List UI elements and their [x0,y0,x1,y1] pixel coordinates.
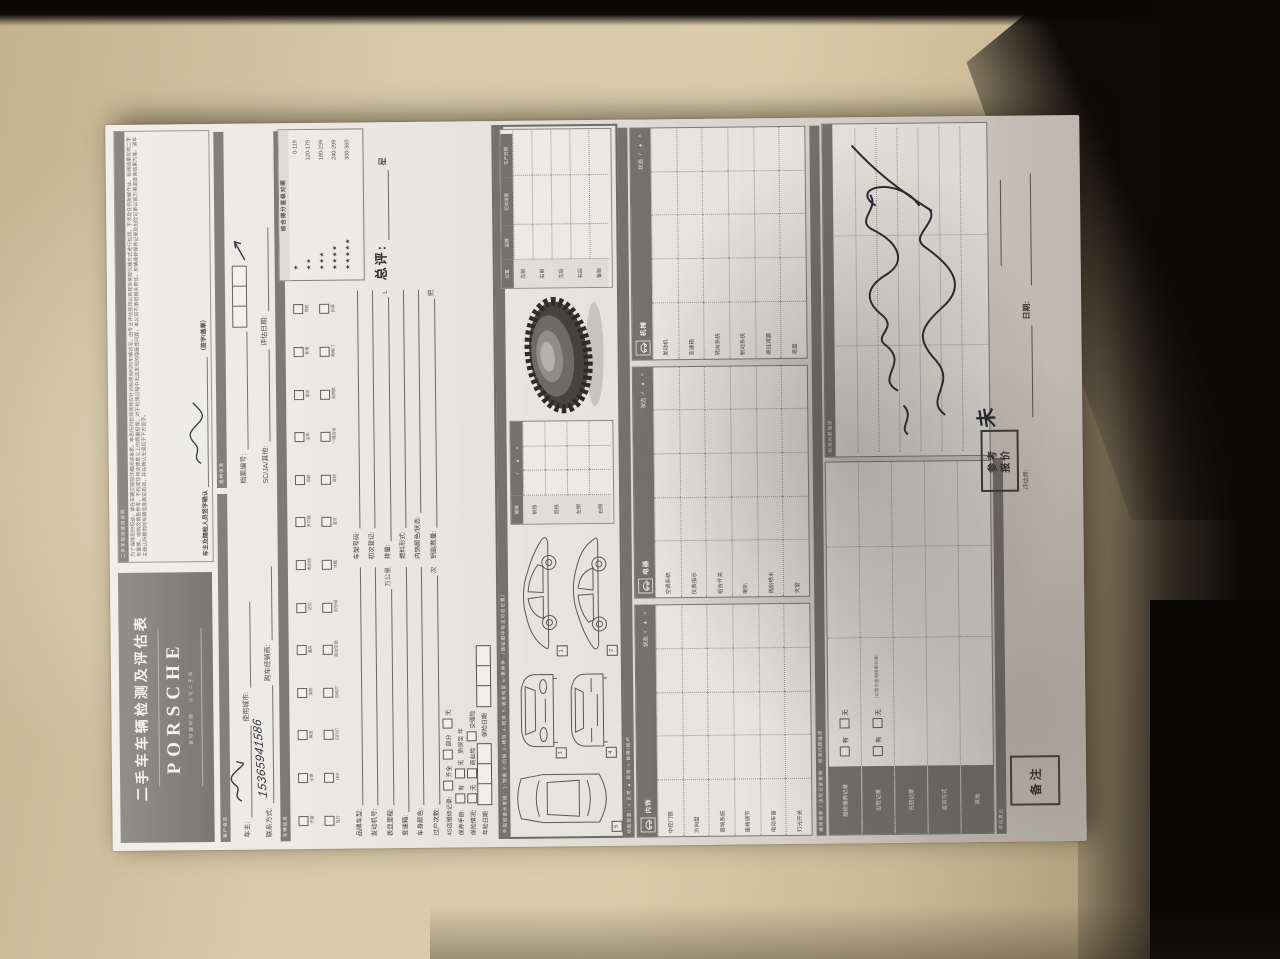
config-checkbox-全景[interactable] [298,773,308,783]
glass-cell[interactable] [567,446,589,471]
function-status-cell[interactable] [652,259,678,303]
date-box[interactable] [476,743,492,805]
disclaimer-block: 二手车检测使用说明 为了保障您的权益，请在车辆交接前仔细阅读本表。本表所列检测项… [113,130,214,563]
config-item: 电尾门 [314,329,340,372]
inspection-form-paper: 二手车车辆检测及评估表 PORSCHE 保时捷中国 · 认可二手车 二手车检测使… [105,115,1087,851]
function-status-cell[interactable] [708,692,734,736]
problem-body[interactable] [833,123,989,457]
function-status-cell[interactable] [782,453,808,497]
checkbox-无[interactable] [455,769,465,779]
config-item: 真皮 [292,713,318,756]
assessor-label: 评估师: [1021,470,1030,490]
function-status-cell[interactable] [780,258,806,302]
function-status-cell[interactable] [782,496,808,540]
tire-head-cell: 位置 [502,260,514,288]
function-status-cell[interactable] [734,736,760,780]
status-label: 状态 [642,636,650,647]
function-status-cell[interactable] [756,409,782,453]
record-body[interactable] [925,461,960,765]
config-label: 一键启动 [331,428,337,444]
config-item: 影像 [288,330,314,373]
function-status-cell[interactable] [707,605,733,649]
vehicle-check-rows: 4S店维修记录:齐全部分无保养手册:有无质保至 年保险情况:无商业险交强险年检日… [437,285,495,840]
tire-cell[interactable] [513,176,533,225]
record-option: 有 [840,737,850,757]
record-option: 无 [872,709,882,729]
function-status-cell[interactable] [651,215,677,259]
function-status-cell[interactable] [681,605,707,649]
record-option: 有 [873,737,883,757]
date-line[interactable] [1030,173,1032,285]
config-checkbox-冰箱[interactable] [321,560,331,570]
tire-row: 左前 [512,130,533,288]
function-status-cell[interactable] [753,171,779,215]
vehicle-field: 车身颜色: [407,563,425,840]
function-status-cell[interactable] [781,365,807,409]
check-label: 保险情况: [468,810,477,836]
function-status-cell[interactable] [759,692,785,736]
grid-line [959,545,991,546]
config-row: 氙灯LED日行灯自动灯自动空调后空调冰箱蓝牙音响一键启动无钥匙电尾门抬显 [314,287,346,841]
star-rating: ★★ [306,257,313,270]
file-code-box[interactable] [232,266,248,328]
function-status-cell[interactable] [757,497,783,541]
function-status-cell[interactable] [656,693,682,737]
config-item: 电动椅 [291,543,317,586]
record-option-label: 有 [873,737,883,744]
field-suffix: L [382,290,389,294]
function-status-cell[interactable] [654,498,680,542]
config-checkbox-无钥匙[interactable] [320,389,330,399]
config-checkbox-雷达[interactable] [294,390,304,400]
grid-line [893,546,925,547]
function-status-cell[interactable] [733,692,759,736]
star-rating: ★★★ [319,251,326,270]
overall-field[interactable] [379,170,390,240]
function-status-cell[interactable] [785,691,811,735]
field-input[interactable] [428,576,440,805]
config-label: 雷达 [305,390,310,398]
config-item: 冰箱 [317,542,343,585]
function-status-cell[interactable] [653,367,679,411]
function-status-cell[interactable] [729,258,755,302]
dealer-label: 购车经销商: [263,644,273,681]
function-status-cell[interactable] [779,127,805,171]
function-item-label: 喇叭 [732,541,758,597]
view-label-4: 4 [606,747,617,758]
function-status-cell[interactable] [681,649,707,693]
signature-line[interactable] [1000,180,1002,266]
config-label: 天窗 [309,816,314,824]
config-checkbox-巡航[interactable] [294,475,304,485]
field-suffix: 万公里 [382,567,392,587]
field-label: 排量: [381,544,391,559]
function-status-cell[interactable] [656,649,682,693]
tire-cell[interactable] [570,224,589,259]
tire-position-label: 左前 [514,260,533,288]
function-item-label: 底盘 [780,301,806,357]
config-item: 自动空调 [318,628,344,671]
function-table-name: 机械 [637,321,647,336]
vehicle-field: 表显里程:万公里 [376,563,394,840]
view-label-2: 2 [607,645,618,656]
checkbox-部分[interactable] [443,749,453,759]
config-checkbox-泊车[interactable] [294,432,304,442]
vehicle-field: 车架号码: [343,286,361,563]
vehicle-fields: 品牌车型:车架号码:发动机号:初次登记:表显里程:万公里排量:L变速箱:燃料形式… [343,286,441,841]
config-checkbox-自动空调[interactable] [322,645,332,655]
function-table-机械: 机械状态√ ▲ ×发动机变速箱转向系统制动系统悬挂减震底盘 [629,126,807,361]
function-status-cell[interactable] [754,258,780,302]
record-row: 维修保养记录有无 [826,462,862,834]
function-status-cell[interactable] [779,170,805,214]
glass-cell[interactable] [522,422,544,447]
function-status-cell[interactable] [678,367,704,411]
tire-cell[interactable] [512,131,531,176]
status-symbols: √ ▲ × [637,132,643,155]
car-rear-view-diagram[interactable]: 4 [563,664,615,757]
center-label: SC/JA/其他: [261,446,271,484]
function-status-cell[interactable] [703,259,729,303]
check-option: 无 [442,709,452,728]
record-checkbox-有[interactable] [873,746,883,756]
function-item-label: 座椅调节 [734,779,760,835]
function-tables: 内饰状态√ ▲ ×中控门锁方向盘音响系统座椅调节电动车窗灯光开关电器状态√ ▲ … [629,126,812,838]
function-status-cell[interactable] [679,454,705,498]
tire-cell[interactable] [570,175,590,224]
glass-cell[interactable] [566,421,588,446]
glass-row-label: 右侧 [589,495,611,523]
config-checkbox-抬显[interactable] [319,304,329,314]
config-item: 天窗 [293,798,319,841]
function-status-cell[interactable] [730,410,756,454]
photo-of-inspection-form: 二手车车辆检测及评估表 PORSCHE 保时捷中国 · 认可二手车 二手车检测使… [0,0,1280,959]
function-status-cell[interactable] [677,259,703,303]
config-checkbox-真皮[interactable] [297,731,307,741]
function-status-cell[interactable] [705,410,731,454]
function-status-cell[interactable] [679,410,705,454]
function-status-cell[interactable] [730,366,756,410]
record-body[interactable] [958,461,993,765]
function-status-cell[interactable] [782,409,808,453]
function-status-cell[interactable] [731,453,757,497]
car-front-view-diagram[interactable]: 3 [513,664,565,757]
file-no-field[interactable] [237,332,248,450]
score-legend-box: 综合得分星级对照 ★0-119★★120-179★★★180-239★★★★24… [277,128,365,281]
function-status-cell[interactable] [676,172,702,216]
function-item-label: 灯光开关 [785,779,811,835]
overall-unit: 星 [376,157,389,166]
tire-cell[interactable] [532,175,552,224]
field-suffix: 次 [428,567,438,574]
tire-cell[interactable] [531,130,550,175]
tire-cell[interactable] [513,225,532,260]
glass-cell[interactable] [523,446,545,471]
dealer-field[interactable] [262,566,273,640]
vehicle-field: 品牌车型: [346,563,364,840]
signature-line-2[interactable] [1031,325,1033,417]
glass-head: 玻璃√ ▲ × [510,422,523,524]
config-item: 自动灯 [318,670,344,713]
car-top-view-diagram[interactable]: 5 [513,766,621,831]
function-item-label: 仪表指示 [680,541,706,597]
glass-cell[interactable] [589,470,611,495]
confirm-suffix: （签字/盖章） [198,316,207,354]
tire-cell[interactable] [532,224,551,259]
record-checkbox-无[interactable] [839,719,849,729]
config-item: 雷达 [289,372,315,415]
car-zone-icon [640,817,655,832]
function-table-name: 电器 [640,560,650,575]
config-checkbox-自动灯[interactable] [323,688,333,698]
date-box[interactable] [475,645,491,707]
config-checkbox-通风[interactable] [296,645,306,655]
owner-label: 车主: [243,822,253,838]
glass-head-cell: 玻璃 [511,496,523,524]
glass-cell[interactable] [523,471,545,496]
field-label: 初次登记: [366,531,376,559]
config-item: 巡航 [290,457,316,500]
grid-line [827,546,859,547]
tire-position-label: 备胎 [590,259,609,287]
check-label: 保养手册: [456,810,465,836]
grid-line [960,636,992,637]
glass-cell[interactable] [545,471,567,496]
checkbox-齐全[interactable] [443,780,453,790]
config-checkbox-电尾门[interactable] [319,347,329,357]
config-label: 泊车 [305,432,310,440]
check-option: 无 [455,760,465,779]
function-status-cell[interactable] [754,214,780,258]
field-label: 车身颜色: [415,808,425,836]
tire-row: 右前 [531,129,552,287]
function-status-cell[interactable] [682,693,708,737]
grid-line [926,545,958,546]
function-item-label: 方向盘 [683,780,709,836]
function-item-label: 转向系统 [703,302,729,358]
function-status-cell[interactable] [785,735,811,779]
check-option: 交强险 [466,711,476,742]
vehicle-section: 车辆信息 天窗全景真皮加热通风记忆电动椅多功能巡航泊车雷达影像导航氙灯LED日行… [273,129,494,841]
phone-field[interactable]: 15365941586 [263,685,274,803]
record-label: 出险记录 [862,766,895,834]
function-status-cell[interactable] [755,366,781,410]
function-status-cell[interactable] [758,604,784,648]
config-checkbox-LED[interactable] [324,773,334,783]
porsche-wordmark: PORSCHE [162,572,187,842]
function-status-cell[interactable] [702,171,728,215]
tire-cell[interactable] [550,130,569,175]
config-label: 全景 [309,773,314,781]
config-checkbox-音响[interactable] [320,475,330,485]
function-status-cell[interactable] [705,454,731,498]
form-title-block: 二手车车辆检测及评估表 PORSCHE 保时捷中国 · 认可二手车 [118,572,215,843]
field-label: 钥匙数量: [427,531,437,559]
config-label: LED [335,773,340,781]
tire-cell[interactable] [569,130,588,175]
tire-head-cell: 花纹深度 [501,178,514,226]
tire-head-cell: 生产日期 [500,134,512,178]
record-checkbox-无[interactable] [872,719,882,729]
config-label: 记忆 [307,603,312,611]
city-field[interactable] [240,602,251,688]
tire-photo [508,294,616,417]
config-item: LED [319,755,345,798]
function-item-label: 天窗 [783,540,809,596]
field-input[interactable] [425,299,437,528]
function-status-cell[interactable] [733,648,759,692]
tire-row: 左后 [550,129,571,287]
config-checkbox-日行灯[interactable] [323,730,333,740]
checkbox-交强险[interactable] [467,732,477,742]
function-status-cell[interactable] [780,214,806,258]
overall-label: 总评: [370,244,389,281]
eval-date-field[interactable] [258,228,269,312]
record-option-label: 无 [872,709,882,716]
function-status-cell[interactable] [727,127,753,171]
function-status-cell[interactable] [705,497,731,541]
function-status-cell[interactable] [703,215,729,259]
config-checkbox-多功能[interactable] [295,517,305,527]
function-status-cell[interactable] [702,128,728,172]
record-option: 无 [839,709,849,729]
function-status-cell[interactable] [657,736,683,780]
record-body[interactable]: 有无（以官方查询结果为准） [859,462,894,766]
glass-row-label: 前挡 [523,496,545,524]
config-item: 一键启动 [315,415,341,458]
function-status-cell[interactable] [653,410,679,454]
vehicle-field: 燃料形式: [389,286,407,563]
glass-cell[interactable] [544,421,566,446]
tire-cell[interactable] [589,175,609,224]
function-status-cell[interactable] [650,128,676,172]
function-table-body: 发动机变速箱转向系统制动系统悬挂减震底盘 [650,127,806,359]
date-box-label: 保险日期 [479,713,488,737]
function-status-cell[interactable] [707,649,733,693]
function-status-cell[interactable] [704,366,730,410]
config-checkbox-天窗[interactable] [298,816,308,826]
file-no-label: 档案编号: [239,454,249,484]
center-field[interactable] [260,350,271,442]
form-title: 二手车车辆检测及评估表 [130,573,153,843]
record-row: 查询方式 [924,461,961,833]
tire-cell[interactable] [551,175,571,224]
function-status-cell[interactable] [732,605,758,649]
divider [158,629,161,787]
function-status-cell[interactable] [680,498,706,542]
record-body[interactable]: 有无 [826,462,861,766]
diagram-section: 外观检查示意图：1-划痕 2-凹陷 3-锈蚀 4-脱漆 5-钣金修复 6-更换件… [491,124,624,839]
function-status-cell[interactable] [728,215,754,259]
record-option-label: 无 [839,709,849,716]
function-status-cell[interactable] [784,604,810,648]
glass-cell[interactable] [545,446,567,471]
shadow-bottom [430,905,1280,959]
status-legend: 状态√ ▲ × [636,132,644,170]
problem-description-table: 检测问题描述 [821,122,990,458]
config-checkbox-加热[interactable] [297,688,307,698]
glass-cell[interactable] [567,470,589,495]
function-status-cell[interactable] [677,215,703,259]
glass-row: 后挡 [544,421,567,523]
confirm-signature-line[interactable] [198,357,209,487]
config-label: 影像 [304,347,309,355]
function-status-cell[interactable] [651,172,677,216]
checkbox-无[interactable] [442,718,452,728]
score-range: 240-299 [331,140,337,160]
handdrawn-arrow [230,236,246,262]
function-item-label: 制动系统 [729,302,755,358]
config-item: 加热 [292,670,318,713]
config-item: 无钥匙 [315,372,341,415]
quote-handwritten-value: 未 [969,407,1001,428]
config-checkbox-后空调[interactable] [322,602,332,612]
tire-head-cell: 品牌 [501,226,513,260]
config-item: 日行灯 [318,713,344,756]
function-status-cell[interactable] [753,127,779,171]
tire-table: 位置品牌花纹深度生产日期左前右前左后右后备胎 [499,128,613,289]
status-symbols: √ ▲ × [640,371,646,394]
record-body[interactable] [892,462,927,766]
tire-row: 右后 [569,129,590,287]
function-table-head: 机械状态√ ▲ × [630,128,652,359]
status-legend: 状态√ ▲ × [641,610,649,648]
function-item-label: 组合开关 [706,541,732,597]
glass-cell[interactable] [589,446,611,471]
config-checkbox-记忆[interactable] [296,603,306,613]
function-status-cell[interactable] [756,453,782,497]
function-status-cell[interactable] [758,648,784,692]
status-label: 状态 [639,398,647,409]
config-item: 后空调 [317,585,343,628]
config-item: 全景 [293,756,319,799]
function-table-head: 电器状态√ ▲ × [633,367,655,598]
config-label: 日行灯 [334,728,340,740]
glass-cell[interactable] [588,421,610,446]
function-item-label: 雨刮喷水 [757,540,783,596]
function-status-cell[interactable] [731,497,757,541]
vehicle-field: 排量:L [374,286,392,563]
function-status-cell[interactable] [682,736,708,780]
function-status-cell[interactable] [759,735,785,779]
config-label: 无钥匙 [331,387,337,399]
function-status-cell[interactable] [654,454,680,498]
config-checkbox-氙灯[interactable] [324,815,334,825]
checkbox-有[interactable] [455,794,465,804]
function-table-内饰: 内饰状态√ ▲ ×中控门锁方向盘音响系统座椅调节电动车窗灯光开关 [634,603,812,838]
car-side-view-left-diagram[interactable]: 1 [512,532,566,655]
view-label-5: 5 [612,821,623,832]
config-checkbox-一键启动[interactable] [320,432,330,442]
function-status-cell[interactable] [708,736,734,780]
divider [200,628,203,786]
vehicle-field: 内饰颜色/状态: [404,286,422,563]
record-checkbox-有[interactable] [840,746,850,756]
function-status-cell[interactable] [728,171,754,215]
car-side-view-right-diagram[interactable]: 2 [562,532,616,655]
tire-cell[interactable] [589,224,608,259]
function-status-cell[interactable] [655,605,681,649]
tire-cell[interactable] [588,130,607,175]
config-checkbox-蓝牙[interactable] [321,517,331,527]
function-status-cell[interactable] [784,648,810,692]
config-checkbox-电动椅[interactable] [295,560,305,570]
tire-cell[interactable] [551,224,570,259]
handwritten-note-scrawl [833,123,986,457]
config-checkbox-导航[interactable] [293,304,303,314]
config-checkbox-影像[interactable] [293,347,303,357]
function-status-cell[interactable] [676,128,702,172]
